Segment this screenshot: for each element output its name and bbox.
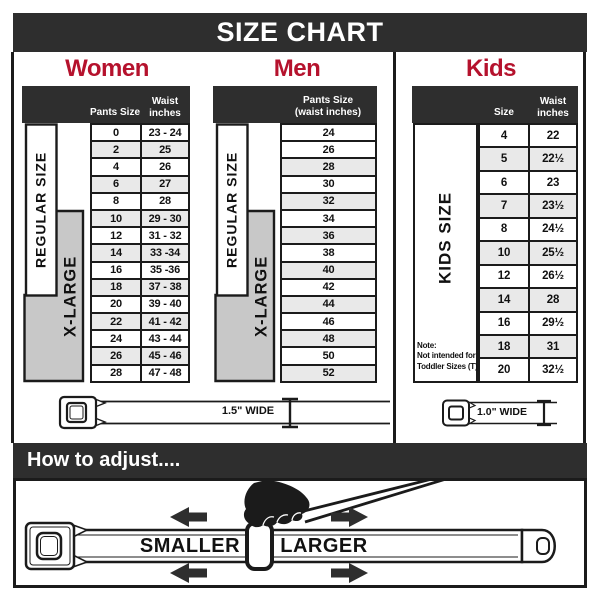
table-cell: 24½ [528,217,578,242]
table-row: 2847 - 48 [90,364,190,383]
adjust-title: How to adjust.... [27,449,180,471]
table-cell: 12 [478,264,530,289]
adult-belt-width-label: 1.5" WIDE [202,405,294,417]
kids-size-label: KIDS SIZE [413,123,478,353]
arrow-left-icon [170,507,207,527]
table-cell: 23½ [528,193,578,218]
column-divider [393,52,396,443]
women-col1-header: Pants Size [88,107,142,119]
table-cell: 26½ [528,264,578,289]
table-row: 723½ [478,193,578,218]
men-table-header: Pants Size (waist inches) [213,86,377,123]
table-cell: 25½ [528,240,578,265]
belt-slider [247,523,272,569]
table-cell: 22 [528,123,578,148]
kids-col1-header: Size [478,107,530,119]
table-cell: 10 [478,240,530,265]
table-row: 1629½ [478,311,578,336]
table-cell: 8 [478,217,530,242]
kids-table: 422522½623723½824½1025½1226½14281629½183… [478,123,578,383]
table-cell: 16 [478,311,530,336]
table-row: 52 [280,364,377,383]
size-chart: SIZE CHART Women Men Kids Pants Size Wai… [0,0,600,600]
table-cell: 47 - 48 [140,364,190,383]
table-cell: 23 [528,170,578,195]
table-cell: 22½ [528,146,578,171]
table-row: 2032½ [478,357,578,382]
arrow-left-icon [170,563,207,583]
table-cell: 52 [280,364,377,383]
right-border [583,52,586,443]
kids-note: Note: Not intended for Toddler Sizes (T) [417,341,477,372]
table-cell: 18 [478,334,530,359]
page-title: SIZE CHART [217,17,384,47]
table-cell: 5 [478,146,530,171]
women-col2-header: Waist inches [142,96,188,120]
kids-heading: Kids [396,55,586,83]
pulled-strap-lines [300,481,446,522]
table-row: 422 [478,123,578,148]
kids-table-header: Size Waist inches [412,86,578,123]
table-cell: 28 [528,287,578,312]
women-table-header: Pants Size Waist inches [22,86,190,123]
table-row: 824½ [478,217,578,242]
table-cell: 20 [478,357,530,382]
title-bar: SIZE CHART [13,13,587,52]
women-regular-size-label: REGULAR SIZE [25,124,56,295]
adjust-title-bar: How to adjust.... [13,443,587,478]
table-cell: 4 [478,123,530,148]
women-table: 023 - 242254266278281029 - 301231 - 3214… [90,123,190,383]
table-cell: 7 [478,193,530,218]
left-border [11,52,14,443]
table-cell: 32½ [528,357,578,382]
larger-label: LARGER [276,535,372,558]
table-row: 1025½ [478,240,578,265]
table-cell: 29½ [528,311,578,336]
table-cell: 28 [90,364,142,383]
women-heading: Women [14,55,200,83]
table-row: 1226½ [478,264,578,289]
table-row: 522½ [478,146,578,171]
men-regular-size-label: REGULAR SIZE [216,124,247,295]
seatbelt-buckle-icon [60,397,105,428]
men-heading: Men [200,55,394,83]
pinching-hand-icon [244,481,310,527]
men-xlarge-label: X-LARGE [247,212,277,381]
table-row: 1428 [478,287,578,312]
smaller-label: SMALLER [135,535,245,558]
arrow-right-icon [331,507,368,527]
kids-col2-header: Waist inches [530,96,576,120]
men-col-header: Pants Size (waist inches) [279,95,377,119]
adjust-illustration [16,481,584,585]
table-cell: 14 [478,287,530,312]
belt-tip [522,530,555,562]
men-table: 242628303234363840424446485052 [280,123,377,383]
women-xlarge-label: X-LARGE [56,212,86,381]
kids-belt-width-label: 1.0" WIDE [462,406,542,418]
table-row: 1831 [478,334,578,359]
table-cell: 31 [528,334,578,359]
table-cell: 6 [478,170,530,195]
arrow-right-icon [331,563,368,583]
table-row: 623 [478,170,578,195]
